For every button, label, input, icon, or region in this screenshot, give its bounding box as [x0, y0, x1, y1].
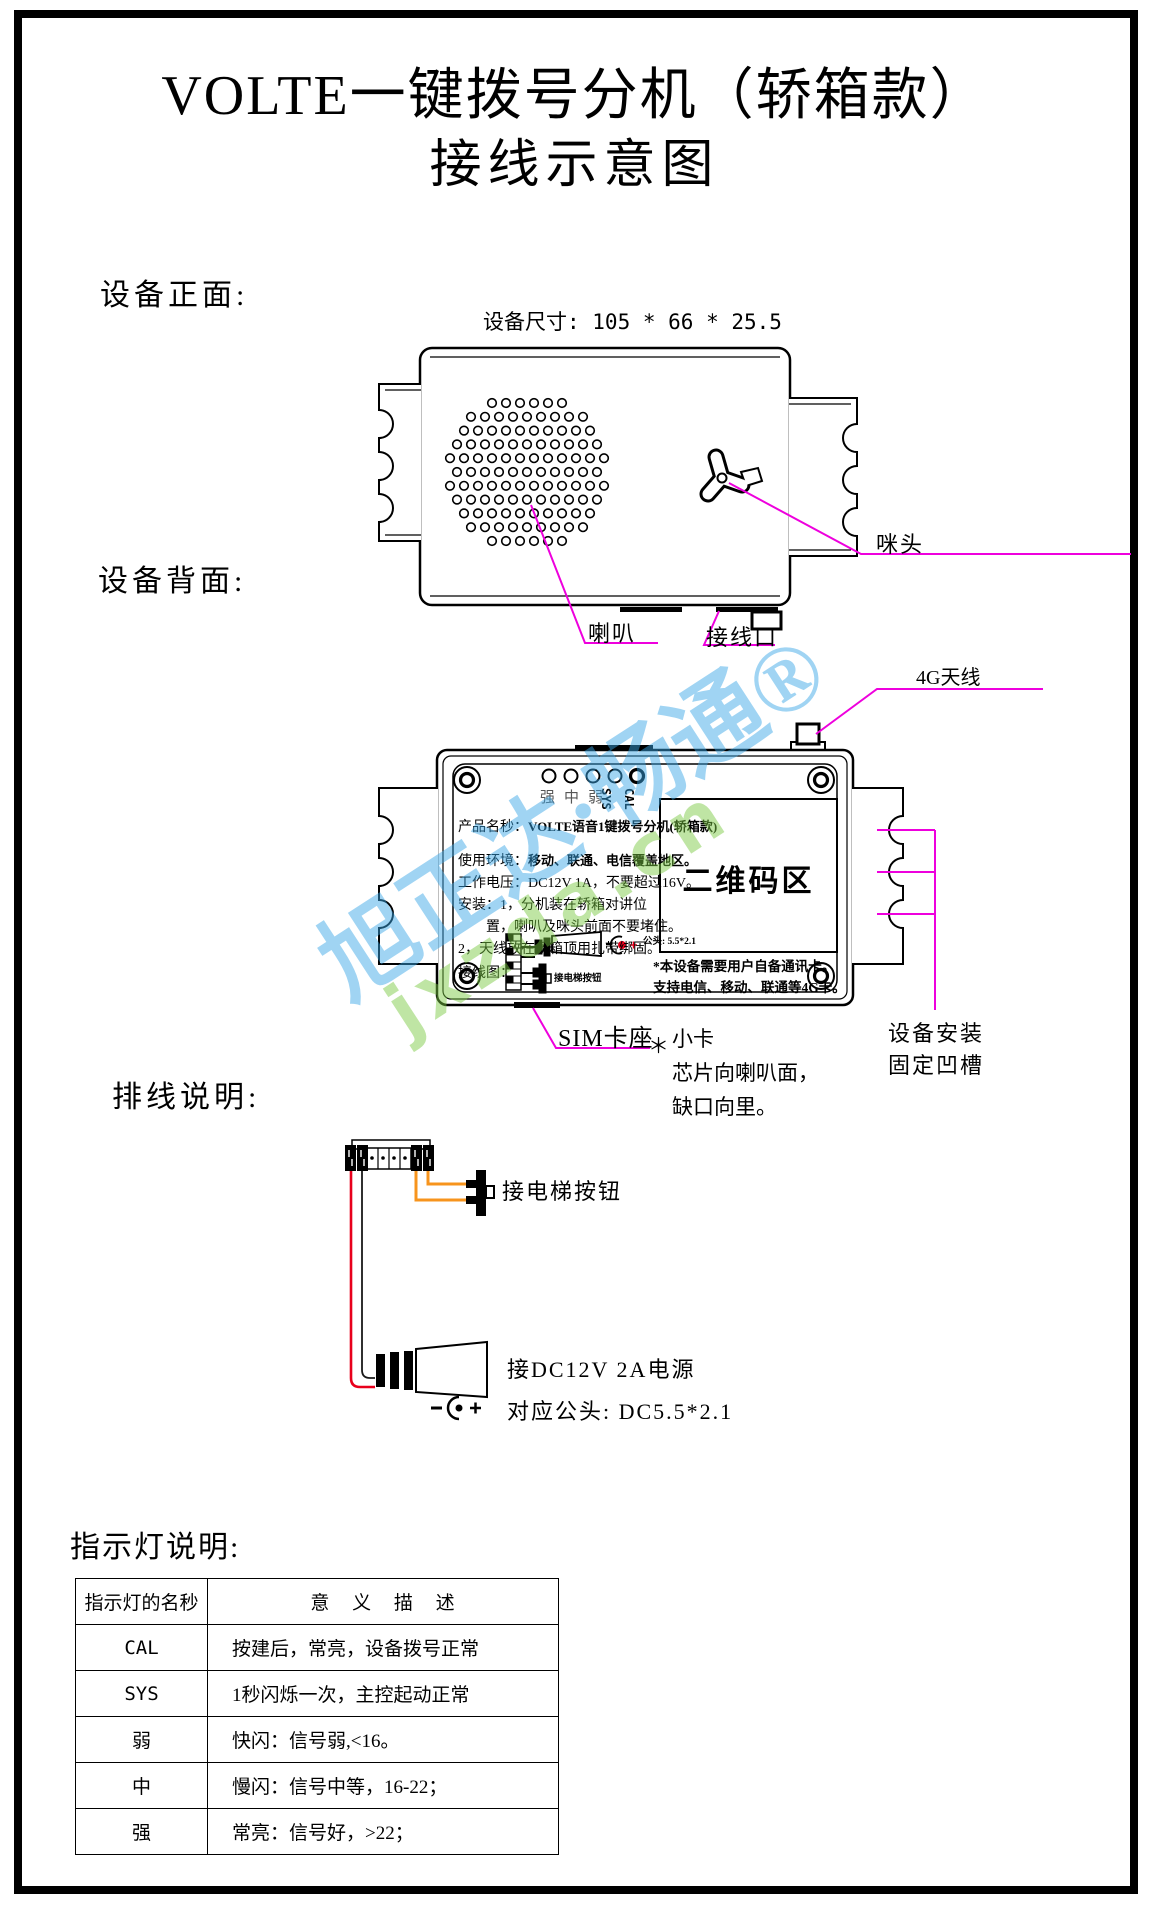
indicator-table: 指示灯的名秒 意 义 描 述 CAL 按建后，常亮，设备拨号正常 SYS 1秒闪… [75, 1578, 559, 1855]
elevator-button-label: 接电梯按钮 [502, 1174, 622, 1206]
sim-note-line3: 缺口向里。 [672, 1091, 777, 1121]
indicator-section-heading: 指示灯说明: [70, 1522, 240, 1566]
power-supply-label: 接DC12V 2A电源 [507, 1352, 695, 1384]
wiring-port-slot [620, 607, 682, 612]
table-row: 中 慢闪：信号中等，16-22； [76, 1763, 559, 1809]
led-sys-label: SYS [599, 788, 613, 810]
label-product-line: 产品名秒：VOLTE语音1键拨号分机(轿箱款) [458, 816, 717, 836]
antenna-label: 4G天线 [916, 661, 980, 690]
speaker-hole-grid [446, 399, 609, 546]
groove-label-line1: 设备安装 [888, 1016, 984, 1048]
wiring-instruction-sheet: { "page_title": { "line1": "VOLTE一键拨号分机（… [0, 0, 1149, 1919]
label-wiring-pre: 接线图： [458, 962, 514, 982]
dc-plug-symbol [376, 1342, 487, 1397]
sim-holder-label: SIM卡座 [558, 1018, 654, 1053]
wiring-section-heading: 排线说明: [112, 1072, 260, 1116]
table-row: CAL 按建后，常亮，设备拨号正常 [76, 1625, 559, 1671]
page-title-line2: 接线示意图 [0, 122, 1149, 197]
wiring-diagram [345, 1140, 494, 1419]
page-title-line1: VOLTE一键拨号分机（轿箱款） [0, 50, 1149, 131]
device-dimensions: 设备尺寸: 105 * 66 * 25.5 [483, 306, 782, 336]
table-row: 弱 快闪：信号弱,<16。 [76, 1717, 559, 1763]
mic-label: 咪头 [876, 527, 924, 559]
speaker-label: 喇叭 [588, 616, 636, 648]
power-positive-wire [351, 1171, 375, 1387]
front-section-heading: 设备正面: [100, 270, 248, 314]
antenna-stub [797, 724, 819, 744]
plug-spec-label: 对应公头: DC5.5*2.1 [507, 1394, 733, 1426]
table-row: SYS 1秒闪烁一次，主控起动正常 [76, 1671, 559, 1717]
label-plug-note: 公头: 5.5*2.1 [643, 933, 696, 947]
polarity-symbol [431, 1397, 481, 1419]
wiring-port-label: 接线口 [706, 620, 778, 652]
sim-card-note-2: 支持电信、移动、联通等4G卡。 [653, 976, 846, 996]
sim-note-line2: 芯片向喇叭面， [672, 1057, 819, 1087]
table-header-row: 指示灯的名秒 意 义 描 述 [76, 1579, 559, 1625]
button-wires [416, 1171, 466, 1200]
groove-label-line2: 固定凹槽 [888, 1048, 984, 1080]
table-row: 强 常亮：信号好，>22； [76, 1809, 559, 1855]
label-install1-line: 安装：1，分机装在轿箱对讲位 [458, 894, 647, 914]
qr-zone-label: 二维码区 [660, 856, 837, 900]
header-desc-col: 意 义 描 述 [208, 1579, 559, 1625]
sim-note-line1: 小卡 [672, 1023, 714, 1053]
header-name-col: 指示灯的名秒 [76, 1579, 208, 1625]
label-button-note: 接电梯按钮 [554, 970, 602, 984]
power-ground-wire [362, 1171, 375, 1378]
front-device-drawing [379, 348, 857, 629]
sim-slot [514, 1002, 560, 1008]
back-section-heading: 设备背面: [98, 556, 246, 600]
sim-star: ＊ [648, 1030, 669, 1060]
label-install3-line: 2，天线放在轿箱顶用扎带绑固。 [458, 938, 661, 958]
sim-card-note-1: *本设备需要用户自备通讯卡。 [653, 955, 835, 975]
led-cal-label: CAL [622, 788, 636, 810]
elevator-button-symbol [466, 1170, 494, 1216]
